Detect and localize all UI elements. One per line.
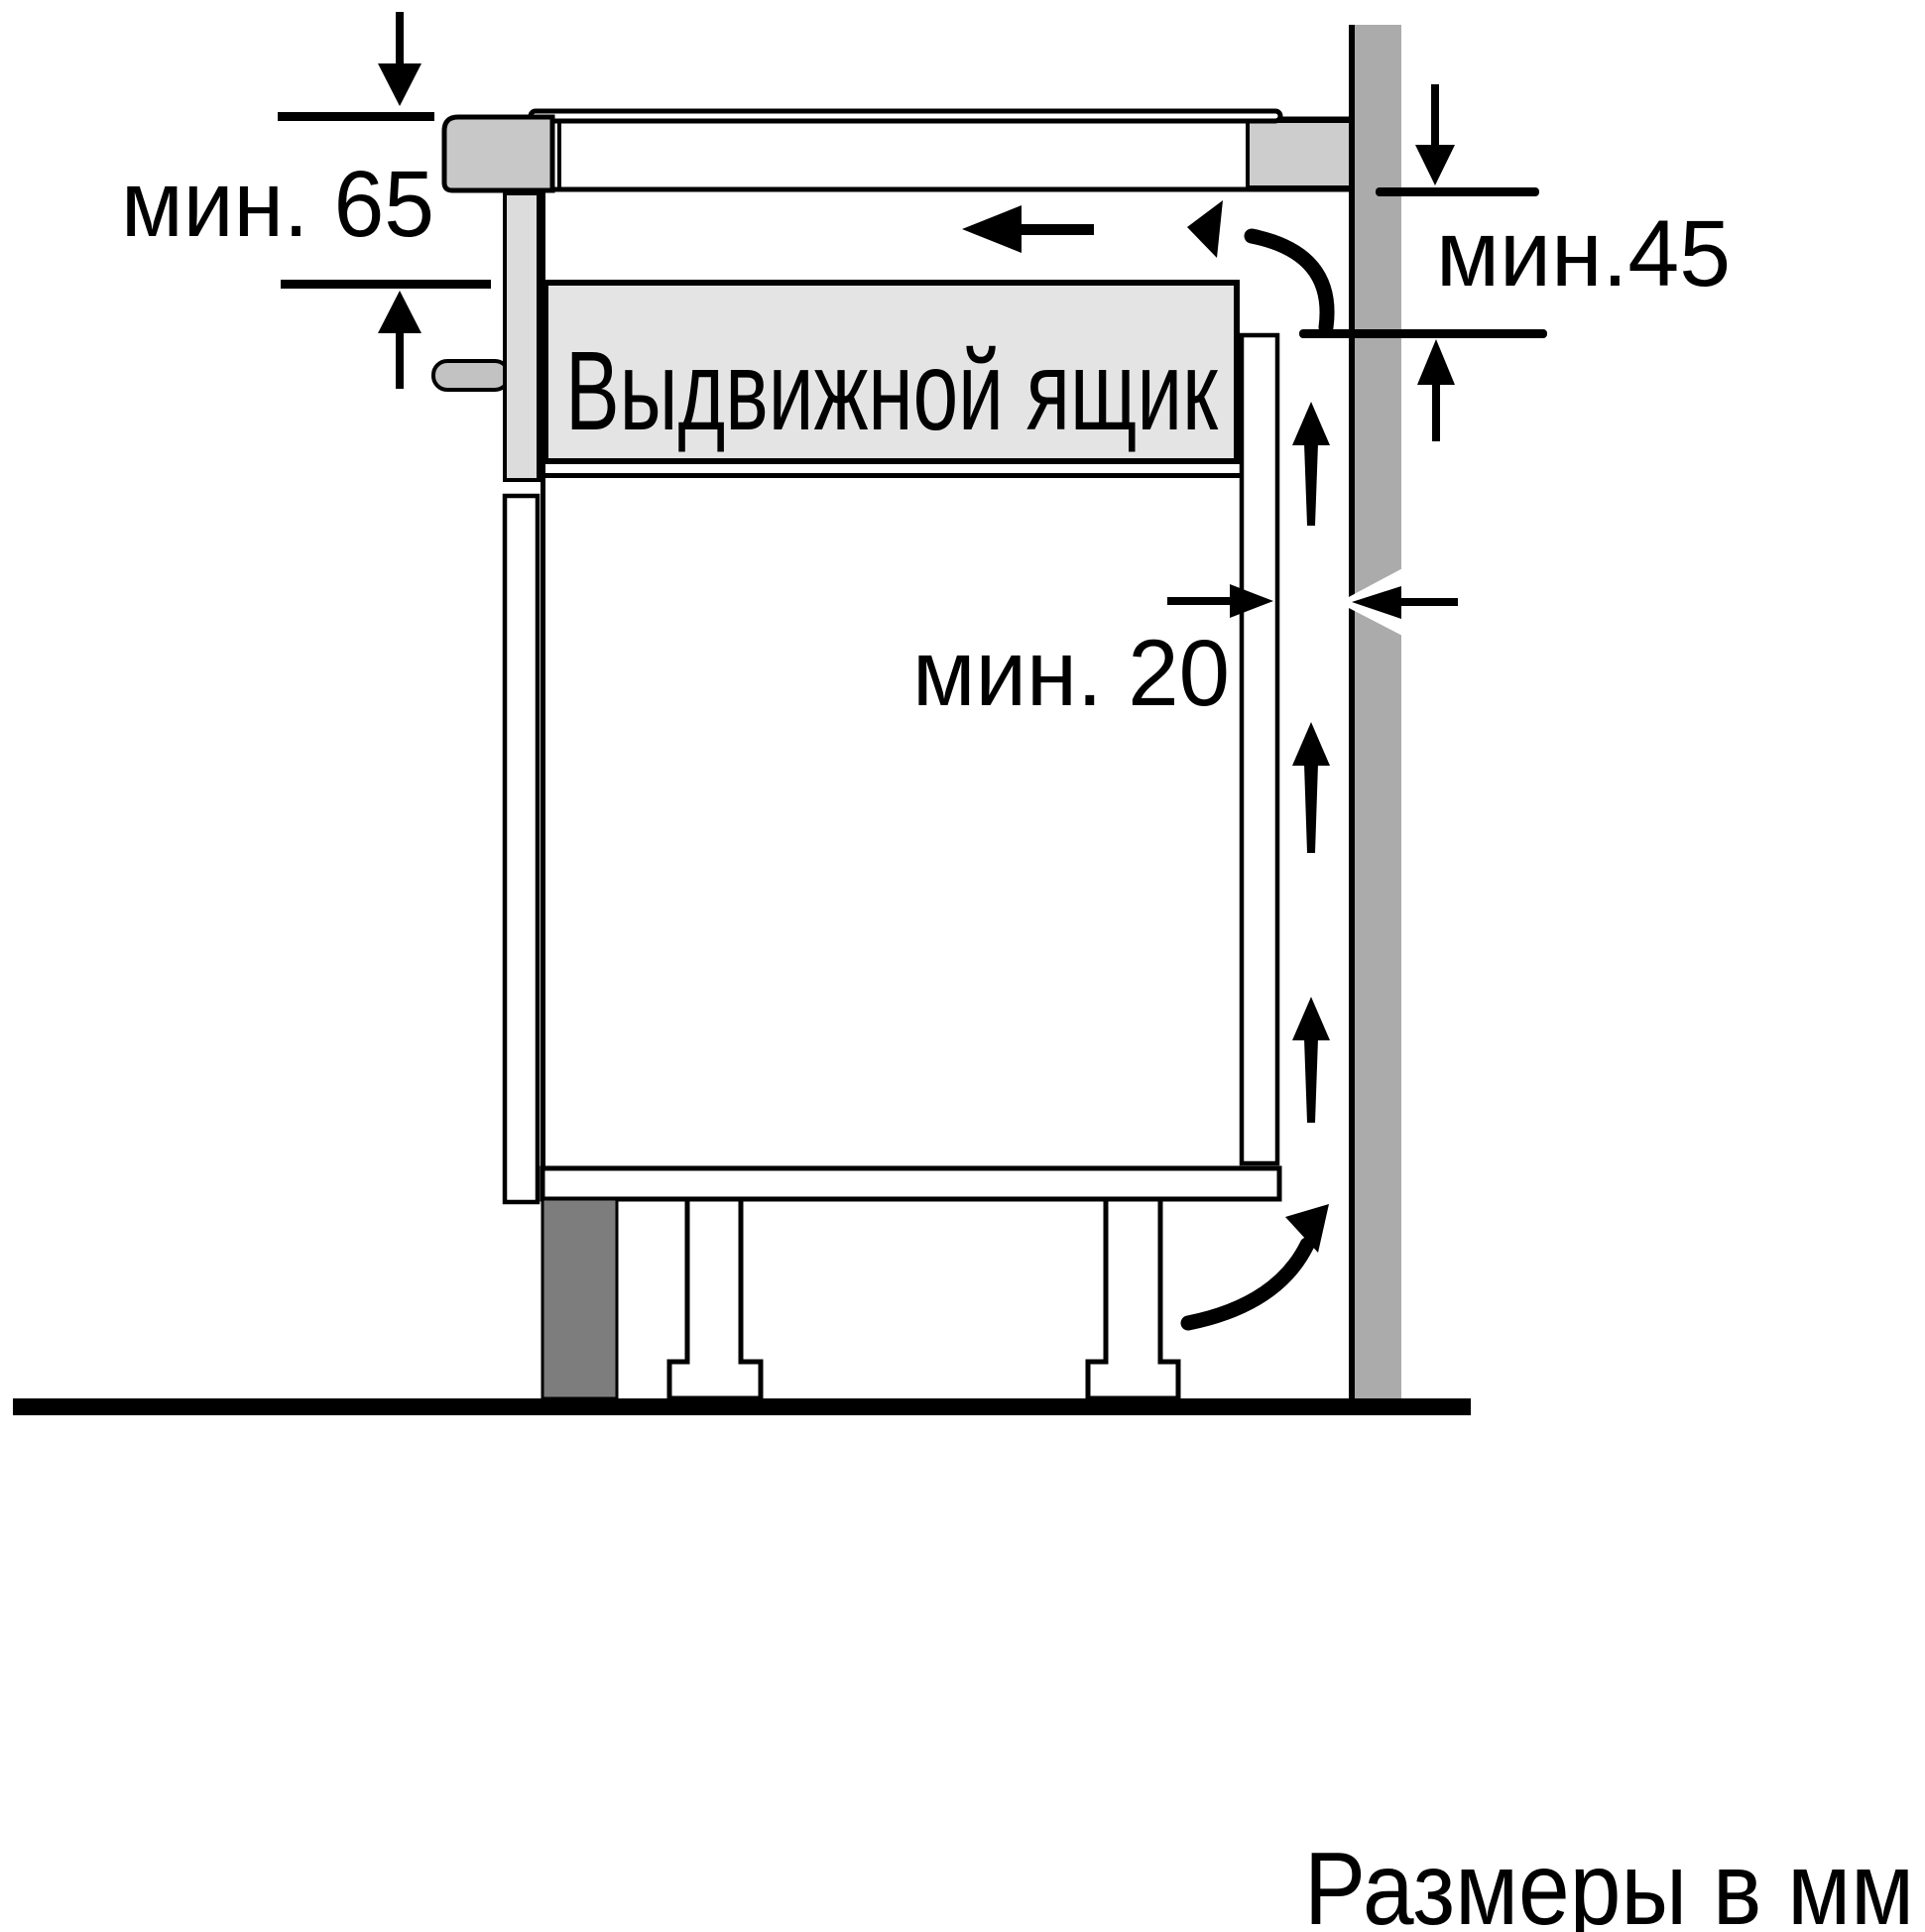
min65-arrow-up-icon [378,291,421,333]
fixing-pin [433,361,509,390]
airflow-up-arrow-stem [1304,443,1318,526]
wall-edge-line [1349,25,1355,1399]
airflow-up-arrow-stem [1304,1038,1318,1123]
min65-arrow-up-stem [396,331,404,389]
cabinet-base [542,1168,1279,1199]
hob-body-section [444,117,552,190]
airflow-up-arrow-icon [1292,722,1330,766]
airflow-curve-top-arrow-icon [1187,200,1223,258]
worktop [541,119,1351,189]
min65-upper-dimension-line [278,112,434,121]
hob-glass [531,111,1280,121]
drawer-label: Выдвижной ящик [565,328,1218,453]
min20-label: мин. 20 [912,621,1230,726]
installation-diagram: Выдвижной ящик мин. 65 мин.45 мин. 20 [0,0,1925,1932]
airflow-curve-bottom [1188,1245,1307,1323]
min20-arrow-left-stem [1399,598,1458,606]
plinth-panel [542,1199,617,1398]
airflow-up-arrow-stem [1304,764,1318,853]
airflow-curve-top [1252,236,1327,327]
airflow-left-arrow-icon [962,205,1022,253]
worktop-end-section [1248,121,1351,187]
min65-arrow-down-icon [378,63,421,106]
airflow-left-arrow-stem [1018,224,1094,235]
min45-arrow-down-stem [1431,84,1439,149]
hob-downstand [505,193,539,480]
cabinet-leg-front [669,1199,761,1398]
min45-lower-dimension-line [1299,329,1547,338]
min45-upper-dimension-line [1376,187,1539,196]
min45-arrow-up-icon [1417,339,1455,385]
min20-arrow-right-stem [1167,597,1233,605]
min65-label: мин. 65 [121,152,434,257]
floor-line [13,1398,1471,1415]
cabinet-back-panel [1242,335,1277,1163]
front-door-panel [505,496,538,1202]
units-note: Размеры в мм [1304,1832,1914,1932]
airflow-up-arrows [1292,402,1330,1123]
wall-section [1351,25,1401,1399]
min65-arrow-down-stem [396,12,404,71]
min45-arrow-up-stem [1432,383,1440,441]
cabinet-leg-rear [1088,1199,1178,1398]
airflow-up-arrow-icon [1292,402,1330,445]
min45-label: мин.45 [1436,201,1731,306]
min65-lower-dimension-line [281,280,491,289]
airflow-up-arrow-icon [1292,997,1330,1040]
min45-arrow-down-icon [1415,145,1455,185]
